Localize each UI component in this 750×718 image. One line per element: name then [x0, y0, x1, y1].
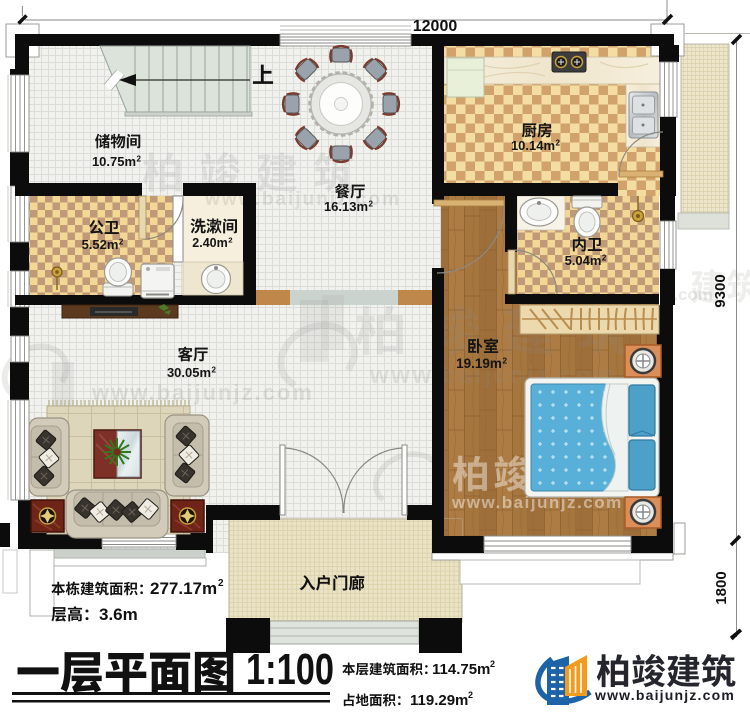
svg-text:12000: 12000 — [413, 18, 458, 35]
svg-text:www.baijunjz.com: www.baijunjz.com — [594, 687, 735, 703]
svg-text:2: 2 — [502, 355, 507, 365]
svg-text:277.17m: 277.17m — [150, 579, 217, 598]
svg-text:2: 2 — [556, 138, 561, 147]
svg-text:10.75m: 10.75m — [92, 154, 136, 169]
svg-text:2: 2 — [490, 659, 495, 669]
svg-text:10.14m: 10.14m — [511, 138, 555, 153]
svg-text:30.05m: 30.05m — [167, 365, 211, 380]
svg-text:1:100: 1:100 — [246, 645, 334, 694]
svg-text:2: 2 — [602, 253, 607, 262]
svg-text:2: 2 — [228, 236, 232, 245]
svg-text:2: 2 — [218, 578, 224, 589]
svg-text:19.19m: 19.19m — [456, 356, 502, 371]
svg-text:2.40m: 2.40m — [192, 236, 227, 250]
svg-text:3.6m: 3.6m — [99, 605, 138, 624]
svg-text:2: 2 — [212, 365, 217, 374]
svg-text:2: 2 — [137, 154, 142, 163]
svg-text:5.52m: 5.52m — [82, 237, 119, 252]
svg-text:2: 2 — [119, 237, 124, 246]
svg-text:5.04m: 5.04m — [565, 253, 602, 268]
svg-text:119.29m: 119.29m — [410, 692, 468, 709]
svg-text:16.13m: 16.13m — [324, 199, 368, 214]
svg-text:1800: 1800 — [713, 571, 730, 604]
svg-text:114.75m: 114.75m — [432, 661, 490, 678]
svg-text:9300: 9300 — [712, 274, 729, 307]
svg-text:2: 2 — [468, 690, 473, 700]
svg-text:2: 2 — [369, 199, 374, 208]
